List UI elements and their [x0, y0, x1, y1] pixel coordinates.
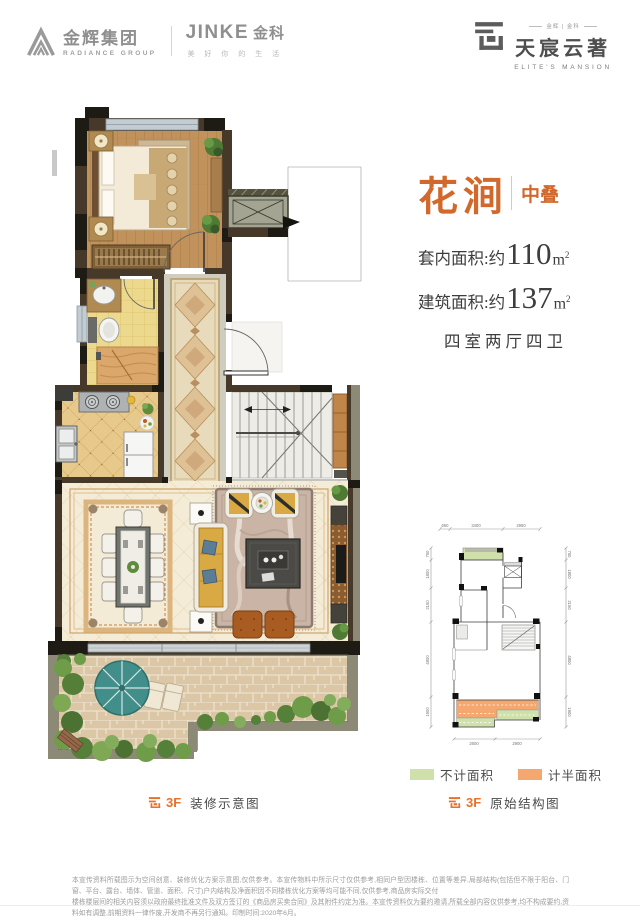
wardrobe — [92, 245, 170, 269]
stair-cabinet — [333, 394, 347, 468]
dining-chair — [124, 606, 142, 623]
void-outline — [288, 167, 361, 281]
stove — [79, 392, 129, 412]
radiance-mountain-icon — [26, 25, 56, 57]
sink — [87, 279, 121, 312]
structural-diagram: 650 3400 2950 750 1800 2150 4800 1900 75… — [425, 505, 600, 757]
mansion-sublabel: 金辉 | 金科 — [529, 22, 597, 30]
bowl — [127, 396, 135, 404]
caption-text: 装修示意图 — [190, 793, 260, 812]
mansion-cloud-icon — [473, 22, 505, 50]
side-table — [190, 503, 212, 524]
jinke-tagline: 美 好 你 的 生 活 — [187, 49, 283, 59]
coffee-table — [246, 539, 300, 588]
decorative-line — [584, 26, 597, 27]
sofa — [194, 523, 228, 612]
svg-text:1900: 1900 — [567, 707, 572, 717]
dining-area — [86, 502, 170, 630]
caption-floor: 3F — [466, 795, 481, 810]
structural-plan — [453, 548, 541, 728]
inner-area-value: 110 — [506, 238, 551, 269]
cloud-logo-icon — [448, 797, 461, 809]
legend-label: 计半面积 — [548, 765, 602, 784]
svg-text:750: 750 — [567, 551, 572, 559]
cloud-logo-icon — [148, 797, 161, 809]
gross-area-line: 建筑面积:约 137 m2 — [418, 282, 622, 313]
entry — [224, 322, 282, 375]
svg-text:2950: 2950 — [516, 523, 526, 528]
staircase — [232, 385, 360, 480]
svg-text:1900: 1900 — [425, 707, 430, 717]
bottom-divider — [0, 905, 640, 906]
disclaimer-line-1: 本宣传资料所载图示为空间创意、装修优化方案示意图,仅供参考。本宣传物料中所示尺寸… — [72, 875, 569, 897]
gross-area-unit: m2 — [554, 294, 571, 313]
unit-info: 花涧 中叠 套内面积:约 110 m2 建筑面积:约 137 m2 四室两厅四卫 — [418, 164, 622, 352]
kitchen-sink — [56, 426, 78, 462]
gross-area-value: 137 — [506, 282, 553, 313]
legend-label: 不计面积 — [440, 765, 494, 784]
bathroom — [77, 274, 164, 392]
ottoman — [233, 611, 262, 638]
toilet — [88, 317, 119, 343]
title-divider — [511, 176, 512, 210]
range-hood — [55, 388, 73, 401]
inner-area-label: 套内面积:约 — [418, 245, 505, 269]
floor-plan — [46, 95, 366, 763]
fridge — [124, 432, 153, 478]
bedroom-console — [211, 158, 222, 212]
armchair — [271, 489, 299, 518]
mansion-name-en: ELITE'S MANSION — [514, 64, 612, 71]
header-divider — [171, 26, 172, 56]
side-table — [190, 611, 212, 632]
dining-chair — [124, 510, 142, 527]
svg-text:1800: 1800 — [567, 569, 572, 579]
svg-text:650: 650 — [442, 523, 450, 528]
caption-floor: 3F — [166, 795, 181, 810]
disclaimer-line-2: 楼栋楼层间的相关内容须以政府最终批准文件及双方签订的《商品房买卖合同》及其附件约… — [72, 897, 569, 919]
disclaimer: 本宣传资料所载图示为空间创意、装修优化方案示意图,仅供参考。本宣传物料中所示尺寸… — [72, 875, 569, 919]
round-side-table — [252, 493, 273, 514]
decorative-line — [529, 26, 542, 27]
terrace — [48, 653, 358, 762]
header-left-logos: 金辉集团 RADIANCE GROUP JINKE 金科 美 好 你 的 生 活 — [26, 22, 285, 59]
bedroom — [75, 107, 232, 278]
tv — [336, 545, 346, 583]
svg-text:2150: 2150 — [567, 600, 572, 610]
svg-text:3400: 3400 — [471, 523, 481, 528]
jinke-logo: JINKE 金科 美 好 你 的 生 活 — [186, 22, 285, 59]
nightstand-top — [89, 131, 113, 151]
caption-structural-plan: 3F 原始结构图 — [448, 793, 560, 812]
patio-umbrella — [95, 661, 149, 715]
radiance-name-en: RADIANCE GROUP — [63, 50, 157, 57]
svg-text:750: 750 — [425, 550, 430, 558]
svg-text:2900: 2900 — [512, 741, 522, 746]
shower-head-icon — [96, 352, 101, 360]
svg-text:4800: 4800 — [567, 655, 572, 665]
svg-text:2600: 2600 — [469, 741, 479, 746]
mansion-sublabel-text: 金辉 | 金科 — [546, 22, 580, 30]
svg-text:2150: 2150 — [425, 600, 430, 610]
kitchen — [55, 385, 164, 488]
radiance-name-cn: 金辉集团 — [63, 24, 157, 49]
caption-decorated-plan: 3F 装修示意图 — [148, 793, 260, 812]
elevator-hatch — [505, 563, 522, 567]
unit-type-tag: 中叠 — [521, 180, 559, 207]
area-legend: 不计面积 计半面积 — [410, 765, 602, 784]
elevator-entry-arrow — [283, 216, 300, 229]
gross-area-label: 建筑面积:约 — [418, 289, 505, 313]
legend-item-not-counted: 不计面积 — [410, 765, 494, 784]
elevator — [228, 189, 300, 237]
corridor — [164, 274, 232, 484]
shower — [96, 347, 158, 384]
exterior-marker — [52, 150, 57, 176]
ottoman — [265, 611, 294, 638]
food-plate — [140, 416, 154, 430]
mansion-name-cn: 天宸云著 — [515, 32, 611, 61]
svg-text:4800: 4800 — [425, 655, 430, 665]
living-dining-room — [48, 477, 360, 655]
unit-title: 花涧 — [418, 164, 508, 222]
room-layout: 四室两厅四卫 — [418, 328, 622, 352]
armchair — [225, 489, 253, 518]
orange-swatch — [518, 769, 542, 780]
jinke-brand: JINKE — [186, 22, 249, 44]
svg-text:1800: 1800 — [425, 569, 430, 579]
nightstand-bottom — [89, 217, 113, 241]
entry-door — [224, 371, 268, 375]
legend-item-half-counted: 计半面积 — [518, 765, 602, 784]
brochure-page: 金辉集团 RADIANCE GROUP JINKE 金科 美 好 你 的 生 活 — [0, 0, 640, 920]
jinke-name-cn: 金科 — [253, 22, 285, 43]
tv-console — [331, 506, 347, 623]
inner-area-unit: m2 — [552, 250, 569, 269]
inner-area-line: 套内面积:约 110 m2 — [418, 238, 622, 269]
green-swatch — [410, 769, 434, 780]
caption-text: 原始结构图 — [490, 793, 560, 812]
radiance-logo: 金辉集团 RADIANCE GROUP — [26, 24, 157, 57]
header-right-logo: 金辉 | 金科 天宸云著 ELITE'S MANSION — [473, 22, 612, 71]
